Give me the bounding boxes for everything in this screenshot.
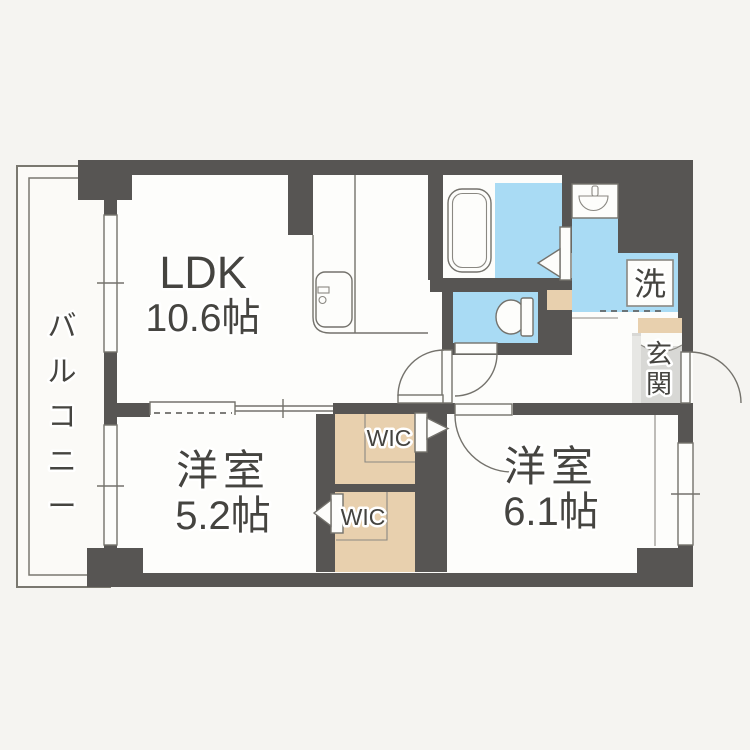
wic-upper-label: WIC (367, 425, 412, 451)
wic-lower-label: WIC (341, 504, 386, 530)
bedroom-small-label: 洋室 (176, 447, 270, 494)
ldk-label: LDK (159, 247, 247, 298)
floor-plan: 洗 (0, 0, 750, 750)
shoe-cabinet (638, 318, 682, 333)
door-entrance (681, 352, 741, 403)
balcony-label: バルコニー (47, 311, 76, 523)
washing-machine: 洗 (627, 260, 673, 306)
ldk-area: 10.6帖 (146, 297, 261, 340)
entrance-label: 玄関 (646, 339, 672, 399)
bedroom-large-area: 6.1帖 (503, 490, 599, 534)
washer-pan (547, 290, 572, 310)
bedroom-small-area: 5.2帖 (175, 494, 271, 538)
washroom-floor (572, 218, 618, 312)
bathtub-icon (448, 189, 491, 272)
washbasin (572, 184, 618, 218)
bedroom-large-label: 洋室 (504, 443, 598, 490)
washing-machine-label: 洗 (634, 266, 666, 302)
floor-plan-svg: 洗 (0, 0, 750, 750)
toilet-icon (496, 298, 533, 336)
kitchen-sink-icon (316, 272, 352, 327)
